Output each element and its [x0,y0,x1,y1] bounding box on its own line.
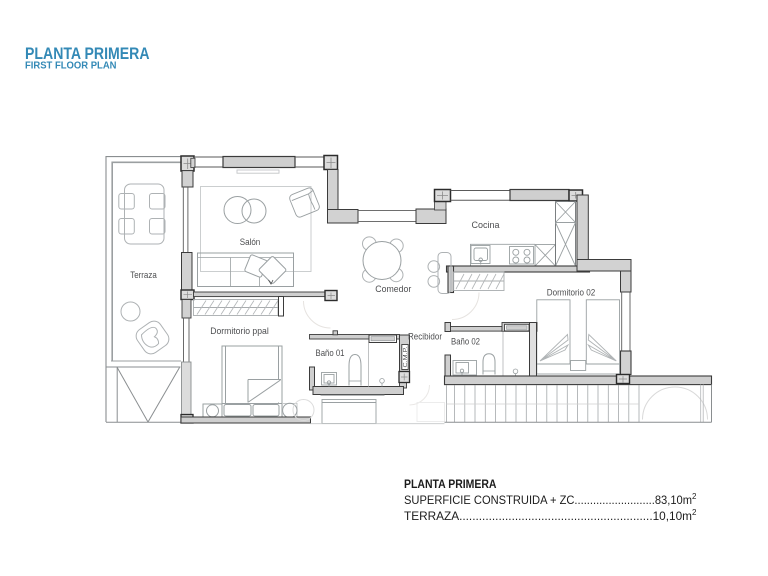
svg-text:Recibidor: Recibidor [408,331,442,341]
svg-text:FIRST FLOOR PLAN: FIRST FLOOR PLAN [25,61,117,72]
svg-text:TERRAZA.......................: TERRAZA.................................… [404,509,692,523]
svg-text:Baño 02: Baño 02 [451,336,480,346]
svg-text:2: 2 [692,508,697,517]
svg-text:C.M.P.: C.M.P. [403,347,409,368]
svg-text:2: 2 [692,492,697,501]
svg-text:PLANTA PRIMERA: PLANTA PRIMERA [404,477,497,491]
svg-text:Cocina: Cocina [472,220,501,230]
svg-text:Baño 01: Baño 01 [316,348,345,358]
svg-text:Dormitorio 02: Dormitorio 02 [547,287,596,297]
svg-text:Dormitorio ppal: Dormitorio ppal [210,326,269,336]
svg-text:Comedor: Comedor [375,284,411,294]
svg-text:Terraza: Terraza [130,270,157,280]
svg-text:SUPERFICIE CONSTRUIDA + ZC....: SUPERFICIE CONSTRUIDA + ZC..............… [404,493,692,507]
svg-text:Salón: Salón [240,237,261,247]
